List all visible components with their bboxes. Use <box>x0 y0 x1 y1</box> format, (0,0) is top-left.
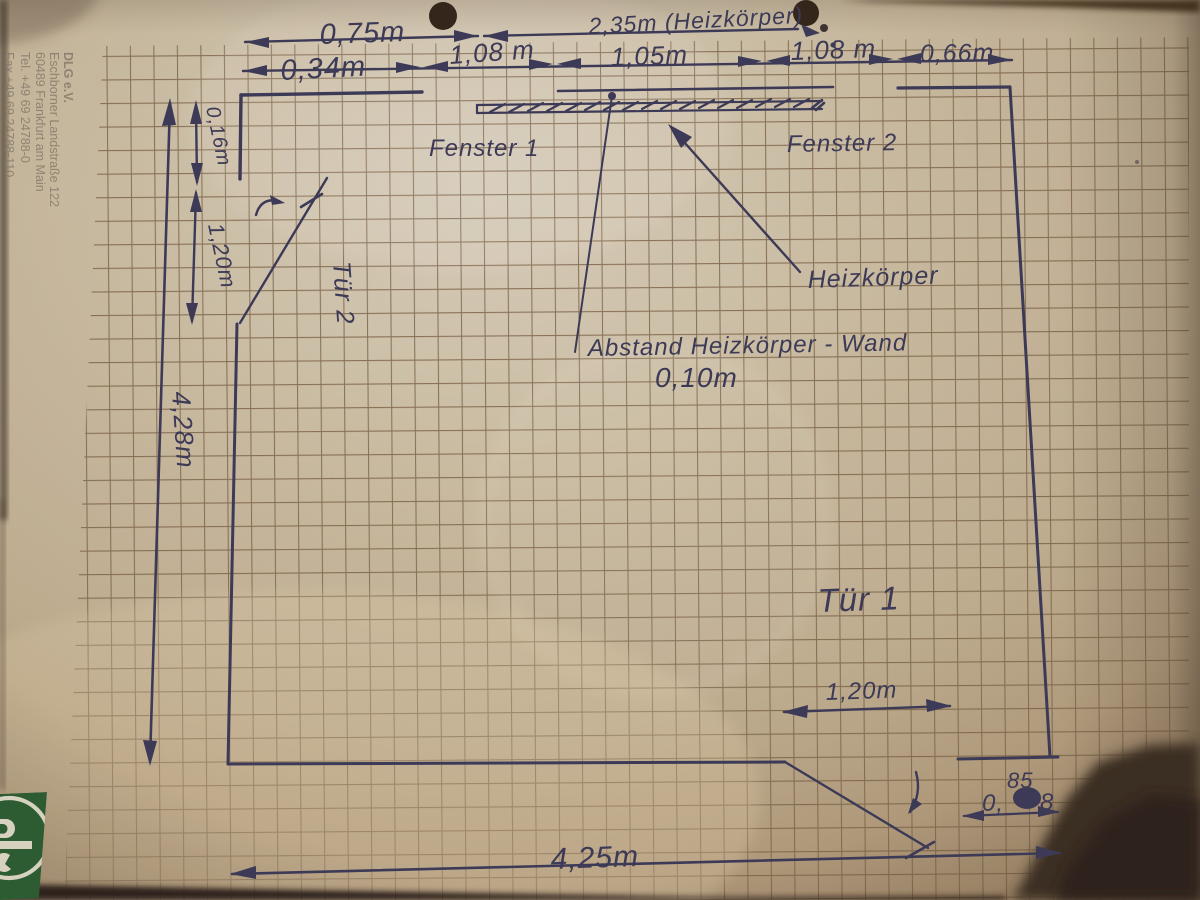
svg-text:4,28m: 4,28m <box>166 390 201 469</box>
svg-text:Eschborner Landstraße 122: Eschborner Landstraße 122 <box>47 52 61 207</box>
svg-text:8: 8 <box>1040 789 1054 816</box>
svg-text:0,75m: 0,75m <box>319 16 406 51</box>
svg-text:0,10m: 0,10m <box>655 362 738 393</box>
svg-text:1,08 m: 1,08 m <box>448 34 535 70</box>
svg-text:DLG e.V.: DLG e.V. <box>61 52 75 103</box>
svg-text:1,05m: 1,05m <box>610 39 688 72</box>
svg-text:4,25m: 4,25m <box>550 840 639 876</box>
svg-text:85: 85 <box>1007 768 1033 793</box>
svg-text:Fenster 1: Fenster 1 <box>429 135 539 162</box>
svg-text:Abstand Heizkörper - Wand: Abstand Heizkörper - Wand <box>586 329 908 362</box>
svg-text:Tür 1: Tür 1 <box>817 579 900 619</box>
svg-text:0,34m: 0,34m <box>280 51 367 87</box>
svg-text:Tür 2: Tür 2 <box>327 260 359 325</box>
svg-text:1,20m: 1,20m <box>825 677 898 706</box>
svg-text:Tel. +49 69 24788-0: Tel. +49 69 24788-0 <box>18 52 32 163</box>
svg-text:1,08 m: 1,08 m <box>790 33 876 66</box>
svg-text:Heizkörper: Heizkörper <box>807 261 939 294</box>
svg-text:0,: 0, <box>982 790 1004 817</box>
svg-text:Fax +49 69 24788-110: Fax +49 69 24788-110 <box>2 52 16 177</box>
svg-text:60489 Frankfurt am Main: 60489 Frankfurt am Main <box>33 52 47 192</box>
svg-text:0,66m: 0,66m <box>920 39 995 68</box>
svg-text:Fenster 2: Fenster 2 <box>787 129 898 158</box>
